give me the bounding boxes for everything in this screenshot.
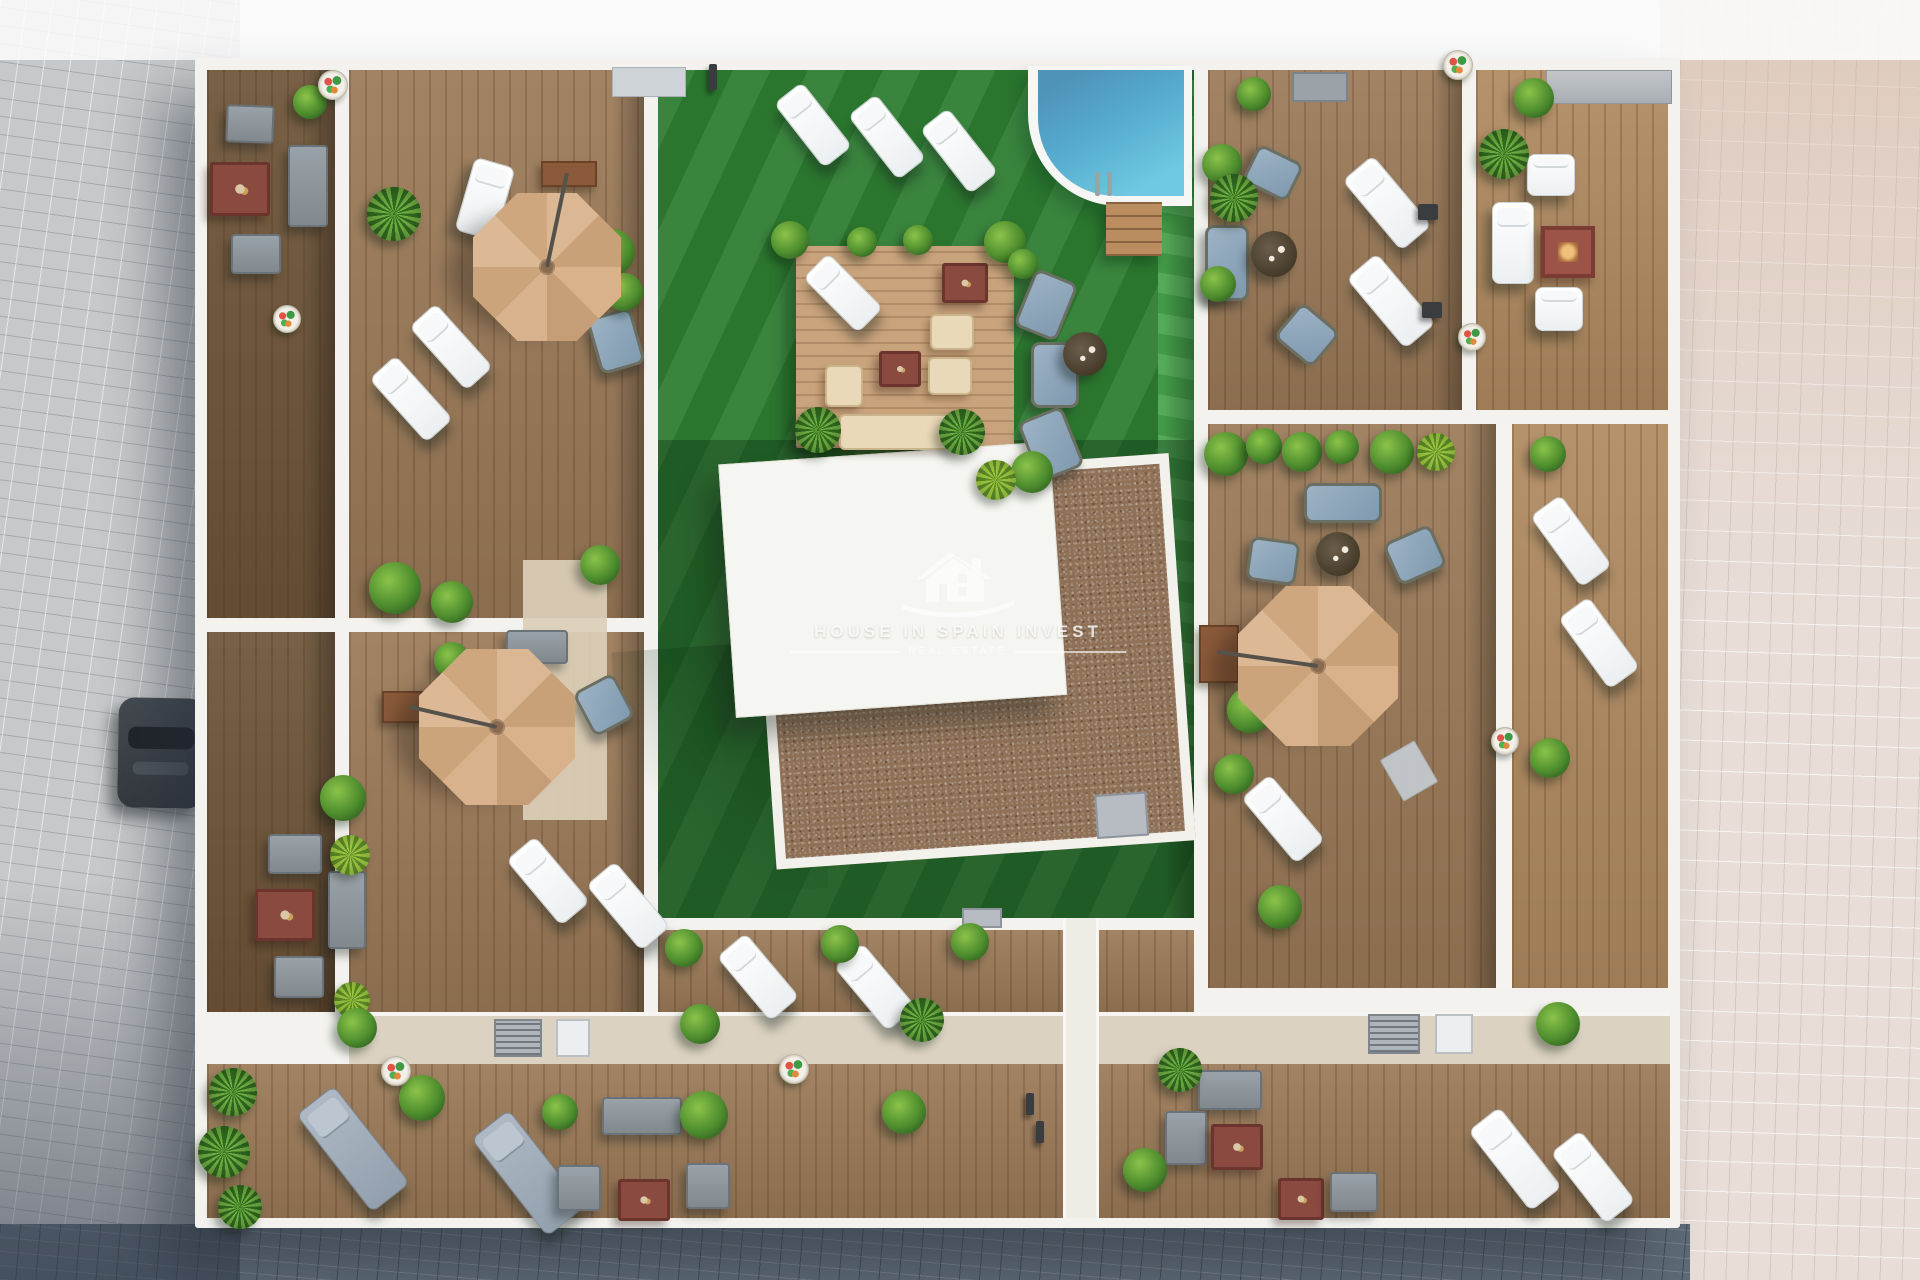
wall-top-right-divider: [1462, 70, 1476, 410]
grey-sofa: [1198, 1070, 1262, 1110]
shrub: [951, 923, 989, 961]
shrub: [1204, 432, 1248, 476]
palm-plant: [218, 1185, 262, 1229]
palm-plant: [1479, 129, 1529, 179]
watermark-tagline-row: REAL ESTATE: [790, 646, 1126, 657]
shrub: [580, 545, 620, 585]
shrub: [542, 1094, 578, 1130]
flower-pot: [318, 70, 348, 100]
shrub: [882, 1090, 926, 1134]
window-unit: [1368, 1014, 1420, 1054]
roof-access-door: [1292, 72, 1348, 102]
grey-armchair: [557, 1165, 601, 1211]
watermark: HOUSE IN SPAIN INVEST REAL ESTATE: [790, 548, 1126, 657]
grey-sofa: [288, 145, 328, 227]
wall-shadow: [303, 632, 335, 1012]
lounge-cushion: [825, 365, 863, 407]
shrub: [320, 775, 366, 821]
shrub: [1514, 78, 1554, 118]
lounge-cushion: [928, 357, 972, 395]
shrub: [1123, 1148, 1167, 1192]
watermark-rule-left: [790, 651, 901, 653]
cantilever-parasol: [419, 649, 575, 805]
shrub: [680, 1091, 728, 1139]
red-coffee-table: [255, 889, 315, 941]
lounge-cushion: [930, 314, 974, 350]
cantilever-parasol: [1238, 586, 1398, 746]
round-wicker-table: [1316, 532, 1360, 576]
roof-vent-unit: [1094, 791, 1149, 839]
blue-armchair: [1245, 536, 1301, 587]
shrub: [1370, 430, 1414, 474]
house-logo-icon: [892, 548, 1024, 622]
red-coffee-table: [618, 1179, 670, 1221]
shrub: [337, 1008, 377, 1048]
flower-pot: [381, 1056, 411, 1086]
red-coffee-table: [1211, 1124, 1263, 1170]
shrub: [1530, 436, 1566, 472]
pool-ladder-rail: [1107, 172, 1112, 196]
grey-armchair: [274, 956, 324, 998]
white-armchair: [1527, 154, 1575, 196]
light-post: [709, 64, 717, 90]
watermark-tagline: REAL ESTATE: [909, 646, 1008, 657]
grey-armchair: [231, 234, 281, 274]
shrub: [1530, 738, 1570, 778]
red-side-table: [942, 263, 988, 303]
pool-ladder-rail: [1095, 172, 1100, 196]
shrub: [771, 221, 809, 259]
shrub: [1282, 432, 1322, 472]
red-coffee-table: [879, 351, 921, 387]
grey-sofa: [602, 1097, 682, 1135]
ac-unit: [494, 1019, 542, 1057]
railing-post: [1026, 1093, 1034, 1115]
grey-armchair: [1330, 1172, 1378, 1212]
watermark-rule-right: [1015, 651, 1126, 653]
shrub: [1237, 77, 1271, 111]
wall-shadow: [1466, 424, 1496, 988]
palm-plant: [367, 187, 421, 241]
red-coffee-table: [1278, 1178, 1324, 1220]
palm-plant: [900, 998, 944, 1042]
palm-plant: [209, 1068, 257, 1116]
grey-lounge-chair: [1165, 1111, 1207, 1165]
grey-sofa: [328, 871, 366, 949]
shrub: [431, 581, 473, 623]
palm-plant: [1158, 1048, 1202, 1092]
shrub: [1258, 885, 1302, 929]
watermark-brand: HOUSE IN SPAIN INVEST: [790, 622, 1126, 642]
wall-right-divider: [1496, 424, 1512, 988]
grey-armchair: [225, 104, 274, 144]
palm-plant: [198, 1126, 250, 1178]
side-table: [1418, 204, 1438, 220]
walkway-vertical: [1063, 918, 1099, 1218]
aerial-render: HOUSE IN SPAIN INVEST REAL ESTATE: [0, 0, 1920, 1280]
red-coffee-table: [210, 162, 270, 216]
shrub: [665, 929, 703, 967]
white-sofa: [1492, 202, 1534, 284]
flower-pot: [1491, 727, 1519, 755]
ac-unit-white: [556, 1019, 590, 1057]
shrub: [1011, 451, 1053, 493]
shrub: [821, 925, 859, 963]
white-armchair: [1535, 287, 1583, 331]
wood-bench: [541, 161, 597, 187]
flower-pot: [273, 305, 301, 333]
agave-plant: [330, 835, 370, 875]
blue-sofa: [1304, 483, 1382, 523]
courtyard-step: [612, 67, 686, 97]
door-unit: [1435, 1014, 1473, 1054]
round-wicker-table: [1251, 231, 1297, 277]
shrub: [1214, 754, 1254, 794]
palm-plant: [939, 409, 985, 455]
shrub: [680, 1004, 720, 1044]
side-table: [1422, 302, 1442, 318]
street-right-pink-tint: [1660, 0, 1920, 620]
round-wicker-table: [1063, 332, 1107, 376]
grey-armchair: [686, 1163, 730, 1209]
shrub: [903, 225, 933, 255]
flower-pot: [1458, 323, 1486, 351]
shrub: [1536, 1002, 1580, 1046]
shrub: [1008, 249, 1038, 279]
wall-shadow: [1432, 70, 1462, 410]
railing-post: [1036, 1121, 1044, 1143]
street-top-glare: [0, 0, 1920, 60]
shrub: [847, 227, 877, 257]
shrub: [369, 562, 421, 614]
street-bottom: [0, 1224, 1690, 1280]
shrub: [1246, 428, 1282, 464]
yellow-palm: [976, 460, 1016, 500]
pool-steps: [1106, 202, 1162, 256]
grey-armchair: [268, 834, 322, 874]
palm-plant: [795, 407, 841, 453]
grey-roof-strip: [1546, 70, 1672, 104]
shrub: [1200, 266, 1236, 302]
parked-car: [117, 697, 205, 808]
terrace-right-sunlit: [1512, 424, 1668, 988]
fire-table: [1541, 226, 1595, 278]
shrub: [1325, 430, 1359, 464]
flower-pot: [1443, 50, 1473, 80]
flower-pot: [779, 1054, 809, 1084]
yellow-palm: [1417, 433, 1455, 471]
palm-plant: [1210, 174, 1258, 222]
